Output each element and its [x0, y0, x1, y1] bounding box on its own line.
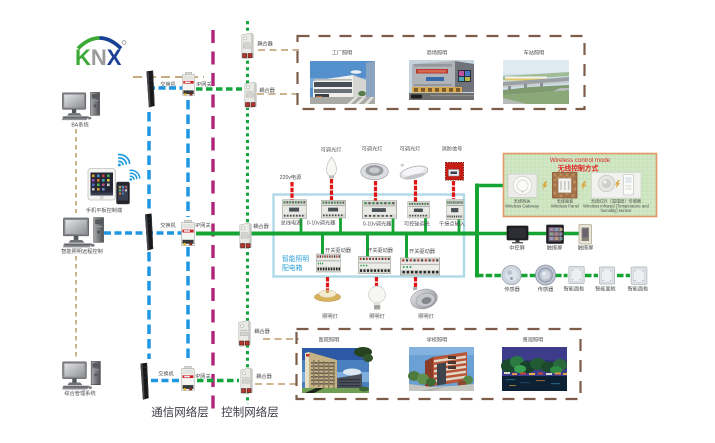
- svg-text:景观照明: 景观照明: [523, 337, 544, 344]
- svg-text:综合管理系统: 综合管理系统: [64, 389, 95, 397]
- svg-text:智能照明: 智能照明: [282, 254, 309, 263]
- svg-text:消防信号: 消防信号: [442, 145, 463, 153]
- svg-text:220v电源: 220v电源: [280, 173, 302, 181]
- svg-text:Wireless control mode: Wireless control mode: [550, 157, 611, 164]
- svg-text:耦合器: 耦合器: [256, 372, 272, 380]
- svg-text:照明灯: 照明灯: [322, 312, 338, 320]
- svg-text:商场照明: 商场照明: [427, 49, 448, 57]
- svg-text:IP网关: IP网关: [195, 372, 210, 380]
- svg-text:开关驱动器: 开关驱动器: [367, 246, 394, 254]
- svg-text:智能面板: 智能面板: [595, 285, 617, 293]
- svg-text:智能照明远程控制: 智能照明远程控制: [61, 247, 103, 255]
- svg-text:传感器: 传感器: [538, 285, 554, 293]
- svg-text:手机平板控制端: 手机平板控制端: [86, 206, 122, 214]
- svg-text:KNX: KNX: [75, 45, 122, 70]
- svg-text:humidity) sensor: humidity) sensor: [601, 208, 632, 213]
- svg-text:可调光灯: 可调光灯: [321, 146, 342, 154]
- svg-text:开关驱动器: 开关驱动器: [409, 247, 436, 255]
- svg-text:无线控制方式: 无线控制方式: [557, 163, 599, 172]
- svg-text:车站照明: 车站照明: [524, 49, 545, 57]
- svg-text:耦合器: 耦合器: [259, 86, 275, 94]
- svg-text:耦合器: 耦合器: [257, 40, 273, 48]
- svg-text:配电箱: 配电箱: [282, 263, 303, 272]
- svg-text:智能面板: 智能面板: [628, 285, 650, 293]
- svg-text:触摸屏: 触摸屏: [578, 244, 594, 252]
- svg-text:0-10v调光器: 0-10v调光器: [307, 219, 336, 227]
- svg-text:Wireless Gateway: Wireless Gateway: [505, 204, 540, 209]
- svg-text:交换机: 交换机: [158, 370, 174, 378]
- svg-text:BA系统: BA系统: [71, 121, 88, 129]
- svg-text:可调光灯: 可调光灯: [400, 145, 421, 153]
- svg-text:Wireless Panel: Wireless Panel: [551, 204, 579, 209]
- svg-text:通信网络层: 通信网络层: [151, 405, 209, 419]
- svg-text:IP网关: IP网关: [196, 80, 211, 88]
- svg-text:可调光灯: 可调光灯: [362, 145, 383, 153]
- svg-text:可控硅调光: 可控硅调光: [404, 220, 430, 228]
- svg-text:0-10v调光器: 0-10v调光器: [363, 220, 392, 228]
- svg-text:学校照明: 学校照明: [427, 336, 448, 344]
- svg-text:照明灯: 照明灯: [418, 312, 434, 320]
- svg-text:触摸屏: 触摸屏: [547, 244, 563, 252]
- svg-text:智能面板: 智能面板: [564, 285, 586, 293]
- svg-text:交换机: 交换机: [160, 221, 176, 229]
- svg-text:照明灯: 照明灯: [369, 312, 385, 320]
- svg-text:交换机: 交换机: [160, 80, 176, 88]
- svg-text:工厂照明: 工厂照明: [332, 50, 353, 57]
- svg-text:控制网络层: 控制网络层: [221, 405, 279, 419]
- svg-text:传感器: 传感器: [504, 285, 520, 293]
- svg-text:IP网关: IP网关: [195, 221, 210, 229]
- svg-text:医院照明: 医院照明: [319, 336, 340, 344]
- svg-text:中控屏: 中控屏: [509, 244, 525, 252]
- svg-text:耦合器: 耦合器: [254, 327, 270, 335]
- svg-text:总线电源: 总线电源: [281, 219, 303, 227]
- svg-text:干接点输入: 干接点输入: [439, 220, 465, 228]
- svg-text:耦合器: 耦合器: [253, 222, 269, 230]
- svg-text:开关驱动器: 开关驱动器: [325, 246, 352, 254]
